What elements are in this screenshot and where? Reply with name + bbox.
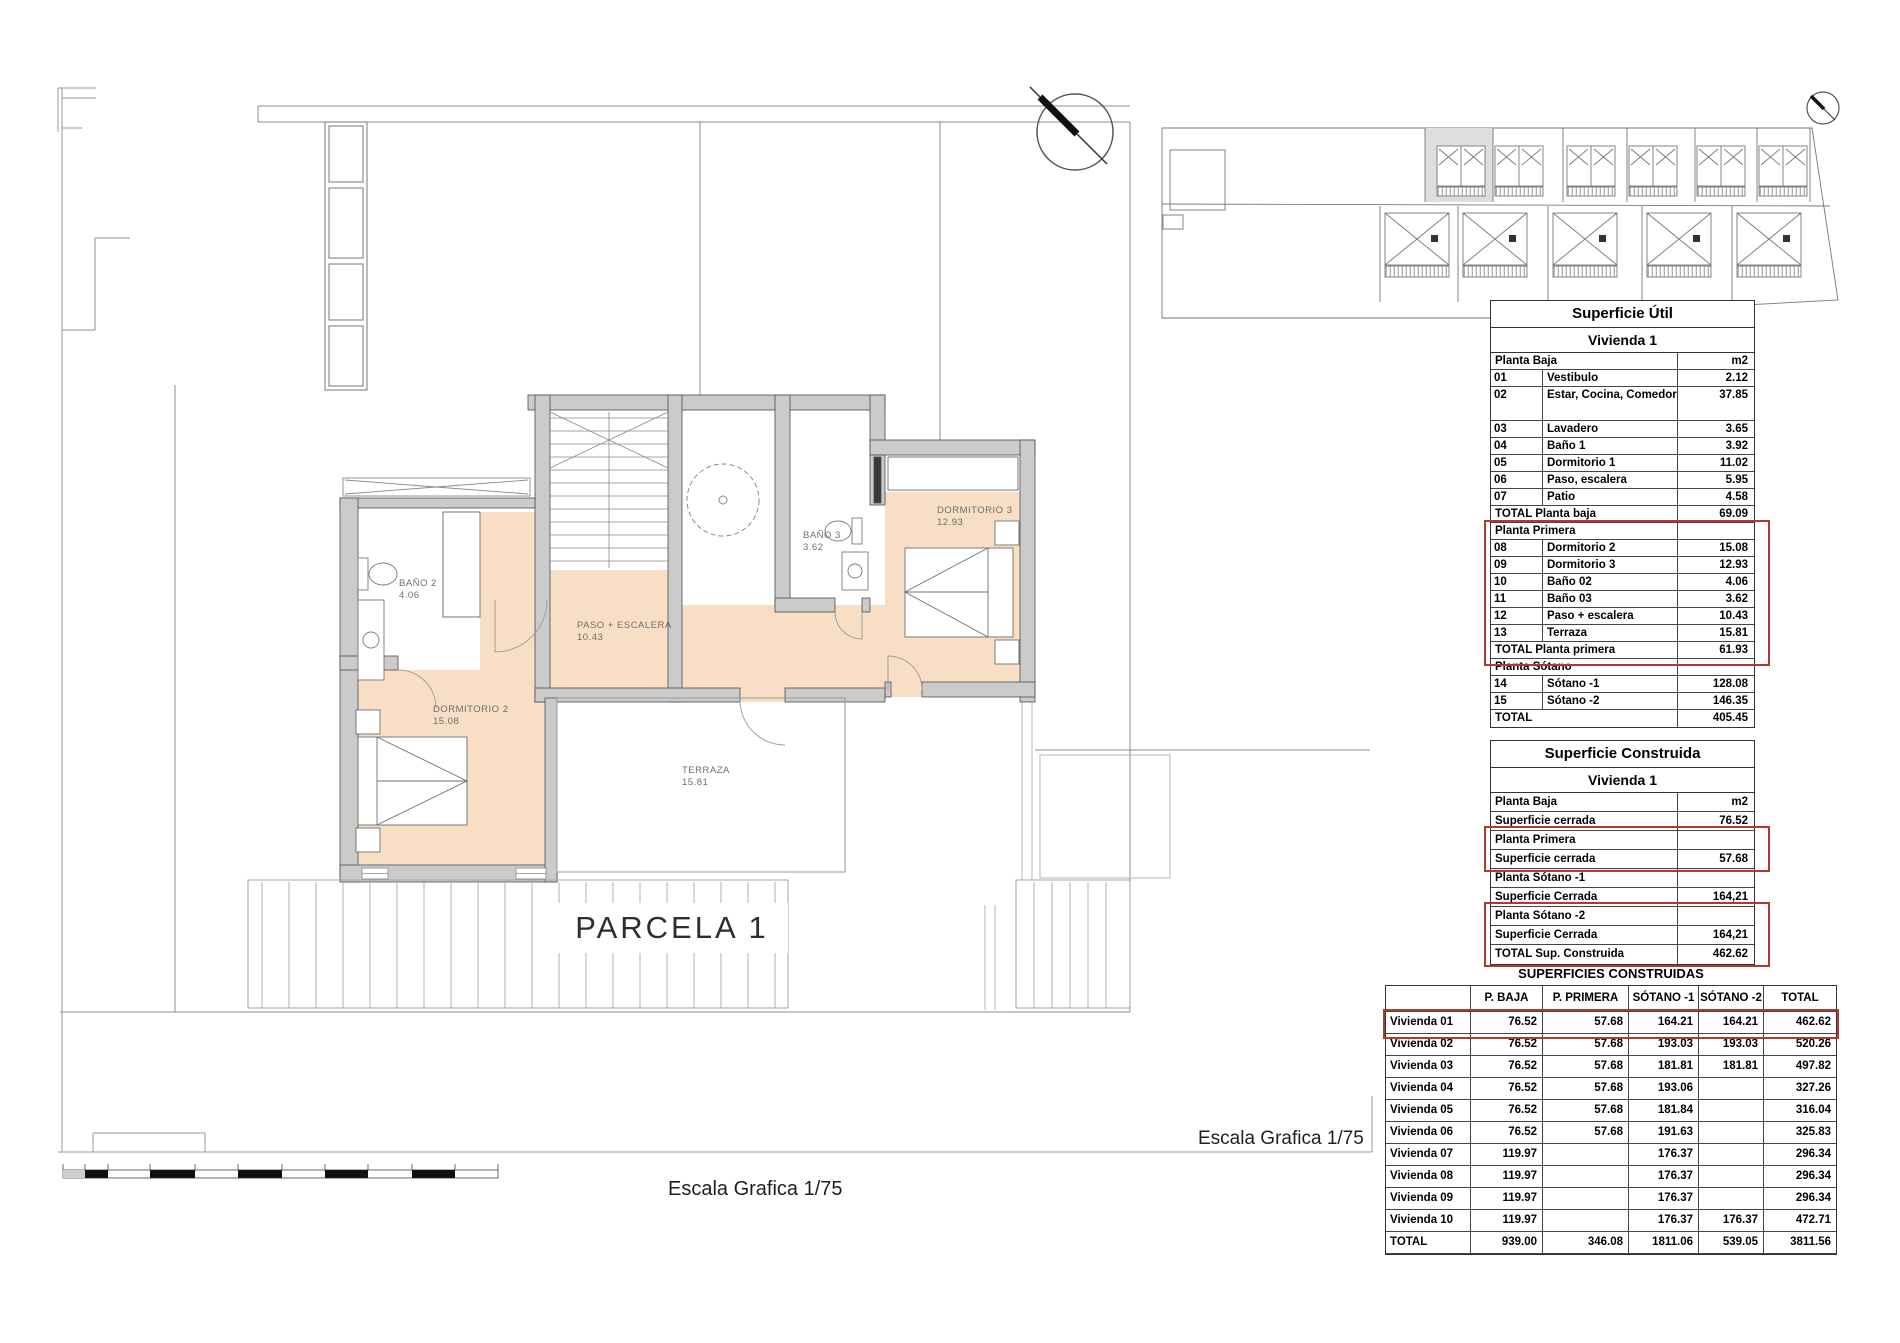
cell-pbaja: 119.97 — [1471, 1188, 1543, 1209]
room-area: 15.08 — [433, 716, 509, 728]
cell-pprimera — [1543, 1188, 1629, 1209]
cell-sotano2: 539.05 — [1699, 1232, 1764, 1253]
row-name: Planta Sótano -2 — [1491, 907, 1678, 925]
row-name: Lavadero — [1543, 421, 1678, 437]
table-row: Vivienda 08 119.97 176.37 296.34 — [1386, 1166, 1836, 1188]
cell-pprimera — [1543, 1166, 1629, 1187]
table-row: 15 Sótano -2 146.35 — [1491, 693, 1754, 710]
row-name: Patio — [1543, 489, 1678, 505]
cell-sotano1: 176.37 — [1629, 1188, 1699, 1209]
table-row: 12 Paso + escalera 10.43 — [1491, 608, 1754, 625]
cell-sotano1: 191.63 — [1629, 1122, 1699, 1143]
table-row: Planta Baja m2 — [1491, 793, 1754, 812]
table-row: TOTAL 405.45 — [1491, 710, 1754, 727]
row-value: 69.09 — [1678, 506, 1752, 522]
row-code: 12 — [1491, 608, 1543, 624]
cell-total: 325.83 — [1764, 1122, 1836, 1143]
site-plan-thumbnail — [1162, 92, 1839, 318]
row-label: Vivienda 08 — [1386, 1166, 1471, 1187]
window-band — [343, 478, 530, 496]
room-area: 12.93 — [937, 517, 1013, 529]
row-label: Vivienda 03 — [1386, 1056, 1471, 1077]
cell-sotano1: 181.84 — [1629, 1100, 1699, 1121]
table-row: Planta Sótano -1 — [1491, 869, 1754, 888]
cell-pprimera — [1543, 1144, 1629, 1165]
row-label: Vivienda 01 — [1386, 1012, 1471, 1033]
row-value — [1678, 659, 1752, 675]
row-code: 07 — [1491, 489, 1543, 505]
cell-pbaja: 76.52 — [1471, 1122, 1543, 1143]
row-label: Vivienda 09 — [1386, 1188, 1471, 1209]
cell-sotano2: 193.03 — [1699, 1034, 1764, 1055]
row-value: 10.43 — [1678, 608, 1752, 624]
cell-sotano1: 193.06 — [1629, 1078, 1699, 1099]
room-name: TERRAZA — [682, 765, 730, 777]
room-label-terraza: TERRAZA 15.81 — [682, 765, 730, 789]
row-label: Vivienda 04 — [1386, 1078, 1471, 1099]
row-label: Vivienda 05 — [1386, 1100, 1471, 1121]
room-area: 3.62 — [803, 542, 841, 554]
graphic-scale-bar — [63, 1164, 498, 1178]
cell-sotano1: 176.37 — [1629, 1144, 1699, 1165]
row-value: 15.08 — [1678, 540, 1752, 556]
row-name: Vestibulo — [1543, 370, 1678, 386]
cell-pbaja: 76.52 — [1471, 1056, 1543, 1077]
architectural-plan-sheet: BAÑO 2 4.06 DORMITORIO 2 15.08 PASO + ES… — [0, 0, 1900, 1343]
row-name: Superficie cerrada — [1491, 812, 1678, 830]
table-header-row: P. BAJA P. PRIMERA SÓTANO -1 SÓTANO -2 T… — [1386, 986, 1836, 1012]
room-label-bano2: BAÑO 2 4.06 — [399, 578, 437, 602]
row-code: 15 — [1491, 693, 1543, 709]
row-label: Vivienda 06 — [1386, 1122, 1471, 1143]
table-row: 13 Terraza 15.81 — [1491, 625, 1754, 642]
table-row: Vivienda 02 76.52 57.68 193.03 193.03 52… — [1386, 1034, 1836, 1056]
table-row: Planta Sótano — [1491, 659, 1754, 676]
row-code: 10 — [1491, 574, 1543, 590]
room-name: BAÑO 3 — [803, 530, 841, 542]
cell-total: 296.34 — [1764, 1144, 1836, 1165]
row-value: 37.85 — [1678, 387, 1752, 420]
room-name: DORMITORIO 2 — [433, 704, 509, 716]
row-label: TOTAL — [1386, 1232, 1471, 1253]
scale-caption-right: Escala Grafica 1/75 — [1198, 1128, 1363, 1150]
cell-pprimera — [1543, 1210, 1629, 1231]
row-name: Planta Primera — [1491, 831, 1678, 849]
cell-total: 462.62 — [1764, 1012, 1836, 1033]
scale-caption-bottom: Escala Grafica 1/75 — [668, 1178, 843, 1201]
cell-pprimera: 346.08 — [1543, 1232, 1629, 1253]
cell-sotano2 — [1699, 1144, 1764, 1165]
row-value: 4.58 — [1678, 489, 1752, 505]
room-area: 10.43 — [577, 632, 672, 644]
row-label: Vivienda 07 — [1386, 1144, 1471, 1165]
row-code: 14 — [1491, 676, 1543, 692]
table-row: 14 Sótano -1 128.08 — [1491, 676, 1754, 693]
row-code: 09 — [1491, 557, 1543, 573]
table-row: Planta Baja m2 — [1491, 353, 1754, 370]
row-value: 164,21 — [1678, 926, 1752, 944]
row-code: 08 — [1491, 540, 1543, 556]
table-row: Vivienda 05 76.52 57.68 181.84 316.04 — [1386, 1100, 1836, 1122]
row-code: 02 — [1491, 387, 1543, 420]
table-row: Vivienda 09 119.97 176.37 296.34 — [1386, 1188, 1836, 1210]
site-north-arrow-icon — [1807, 92, 1839, 124]
row-value — [1678, 831, 1752, 849]
row-code: 11 — [1491, 591, 1543, 607]
table-body: Planta Baja m2 Superficie cerrada 76.52 … — [1491, 793, 1754, 964]
row-name: Dormitorio 1 — [1543, 455, 1678, 471]
row-value: 11.02 — [1678, 455, 1752, 471]
table-row: 05 Dormitorio 1 11.02 — [1491, 455, 1754, 472]
row-name: Dormitorio 3 — [1543, 557, 1678, 573]
cell-pprimera: 57.68 — [1543, 1034, 1629, 1055]
row-name: Planta Baja — [1491, 793, 1678, 811]
row-name: Baño 02 — [1543, 574, 1678, 590]
table-row: 11 Baño 03 3.62 — [1491, 591, 1754, 608]
row-value — [1678, 907, 1752, 925]
row-name: TOTAL Sup. Construida — [1491, 945, 1678, 964]
bath3-fixtures — [825, 518, 868, 590]
room-name: DORMITORIO 3 — [937, 505, 1013, 517]
table-row: 03 Lavadero 3.65 — [1491, 421, 1754, 438]
row-name: Planta Baja — [1491, 353, 1678, 369]
table-row: Vivienda 10 119.97 176.37 176.37 472.71 — [1386, 1210, 1836, 1232]
table-subtitle: Vivienda 1 — [1491, 328, 1754, 353]
table-row: Planta Primera — [1491, 523, 1754, 540]
row-name: TOTAL Planta baja — [1491, 506, 1678, 522]
table-title: Superficie Útil — [1491, 301, 1754, 328]
cell-pbaja: 119.97 — [1471, 1166, 1543, 1187]
row-value: 146.35 — [1678, 693, 1752, 709]
col-header — [1386, 986, 1471, 1011]
row-name: TOTAL Planta primera — [1491, 642, 1678, 658]
col-header: P. PRIMERA — [1543, 986, 1629, 1011]
row-value — [1678, 869, 1752, 887]
row-value: 3.65 — [1678, 421, 1752, 437]
row-name: Sótano -2 — [1543, 693, 1678, 709]
table-row: 02 Estar, Cocina, Comedor 37.85 — [1491, 387, 1754, 421]
cell-pbaja: 76.52 — [1471, 1034, 1543, 1055]
cell-pprimera: 57.68 — [1543, 1012, 1629, 1033]
cell-pbaja: 119.97 — [1471, 1144, 1543, 1165]
room-label-dormitorio2: DORMITORIO 2 15.08 — [433, 704, 509, 728]
room-label-bano3: BAÑO 3 3.62 — [803, 530, 841, 554]
row-code: 05 — [1491, 455, 1543, 471]
col-header: SÓTANO -1 — [1629, 986, 1699, 1011]
cell-sotano1: 176.37 — [1629, 1166, 1699, 1187]
table-row: TOTAL Sup. Construida 462.62 — [1491, 945, 1754, 964]
row-code: 13 — [1491, 625, 1543, 641]
row-value: 15.81 — [1678, 625, 1752, 641]
row-name: TOTAL — [1491, 710, 1678, 727]
row-value: 3.92 — [1678, 438, 1752, 454]
table-row: 01 Vestibulo 2.12 — [1491, 370, 1754, 387]
table-row: Vivienda 04 76.52 57.68 193.06 327.26 — [1386, 1078, 1836, 1100]
row-value: 57.68 — [1678, 850, 1752, 868]
table-row: 09 Dormitorio 3 12.93 — [1491, 557, 1754, 574]
col-header: P. BAJA — [1471, 986, 1543, 1011]
table-row: 07 Patio 4.58 — [1491, 489, 1754, 506]
cell-sotano2 — [1699, 1078, 1764, 1099]
patio-tree — [687, 464, 759, 536]
table-row: Vivienda 07 119.97 176.37 296.34 — [1386, 1144, 1836, 1166]
room-area: 4.06 — [399, 590, 437, 602]
cell-total: 472.71 — [1764, 1210, 1836, 1231]
row-value: m2 — [1678, 353, 1752, 369]
row-label: Vivienda 02 — [1386, 1034, 1471, 1055]
cell-sotano1: 164.21 — [1629, 1012, 1699, 1033]
cell-sotano1: 181.81 — [1629, 1056, 1699, 1077]
cell-sotano1: 193.03 — [1629, 1034, 1699, 1055]
row-value — [1678, 523, 1752, 539]
room-name: PASO + ESCALERA — [577, 620, 672, 632]
row-code: 03 — [1491, 421, 1543, 437]
row-value: 12.93 — [1678, 557, 1752, 573]
row-name: Planta Sótano -1 — [1491, 869, 1678, 887]
cell-pbaja: 119.97 — [1471, 1210, 1543, 1231]
table-row: Planta Sótano -2 — [1491, 907, 1754, 926]
row-value: 462.62 — [1678, 945, 1752, 964]
cell-pprimera: 57.68 — [1543, 1100, 1629, 1121]
row-value: 164,21 — [1678, 888, 1752, 906]
table-row: Vivienda 01 76.52 57.68 164.21 164.21 46… — [1386, 1012, 1836, 1034]
row-name: Terraza — [1543, 625, 1678, 641]
row-value: m2 — [1678, 793, 1752, 811]
superficie-construida-table: Superficie Construida Vivienda 1 Planta … — [1490, 740, 1755, 965]
table-row: Vivienda 03 76.52 57.68 181.81 181.81 49… — [1386, 1056, 1836, 1078]
room-label-dormitorio3: DORMITORIO 3 12.93 — [937, 505, 1013, 529]
table-row: Superficie Cerrada 164,21 — [1491, 926, 1754, 945]
room-area: 15.81 — [682, 777, 730, 789]
cell-sotano2: 164.21 — [1699, 1012, 1764, 1033]
row-value: 4.06 — [1678, 574, 1752, 590]
cell-total: 316.04 — [1764, 1100, 1836, 1121]
table-row: Superficie cerrada 76.52 — [1491, 812, 1754, 831]
row-code: 04 — [1491, 438, 1543, 454]
row-name: Baño 03 — [1543, 591, 1678, 607]
table-row: TOTAL 939.00 346.08 1811.06 539.05 3811.… — [1386, 1232, 1836, 1254]
superficies-construidas-table: SUPERFICIES CONSTRUIDAS P. BAJA P. PRIME… — [1385, 963, 1837, 1255]
parcel-title: PARCELA 1 — [556, 905, 788, 951]
row-name: Dormitorio 2 — [1543, 540, 1678, 556]
superficie-util-table: Superficie Útil Vivienda 1 Planta Baja m… — [1490, 300, 1755, 728]
table-row: 04 Baño 1 3.92 — [1491, 438, 1754, 455]
row-value: 61.93 — [1678, 642, 1752, 658]
row-code: 06 — [1491, 472, 1543, 488]
cell-sotano2 — [1699, 1122, 1764, 1143]
lot-boundary-lines — [60, 106, 1370, 1012]
cell-pprimera: 57.68 — [1543, 1056, 1629, 1077]
table-row: 06 Paso, escalera 5.95 — [1491, 472, 1754, 489]
row-code: 01 — [1491, 370, 1543, 386]
row-name: Superficie cerrada — [1491, 850, 1678, 868]
cell-sotano2: 176.37 — [1699, 1210, 1764, 1231]
cell-sotano2 — [1699, 1188, 1764, 1209]
row-name: Planta Primera — [1491, 523, 1678, 539]
row-value: 76.52 — [1678, 812, 1752, 830]
table-row: 08 Dormitorio 2 15.08 — [1491, 540, 1754, 557]
cell-total: 520.26 — [1764, 1034, 1836, 1055]
cell-sotano2: 181.81 — [1699, 1056, 1764, 1077]
row-name: Planta Sótano — [1491, 659, 1678, 675]
staircase — [550, 412, 668, 568]
room-label-paso-escalera: PASO + ESCALERA 10.43 — [577, 620, 672, 644]
cell-pbaja: 76.52 — [1471, 1100, 1543, 1121]
row-value: 405.45 — [1678, 710, 1752, 727]
row-label: Vivienda 10 — [1386, 1210, 1471, 1231]
cell-total: 327.26 — [1764, 1078, 1836, 1099]
cell-total: 296.34 — [1764, 1166, 1836, 1187]
cell-total: 497.82 — [1764, 1056, 1836, 1077]
row-name: Paso + escalera — [1543, 608, 1678, 624]
table-title: SUPERFICIES CONSTRUIDAS — [1385, 963, 1837, 985]
cell-pprimera: 57.68 — [1543, 1078, 1629, 1099]
cell-pprimera: 57.68 — [1543, 1122, 1629, 1143]
row-value: 5.95 — [1678, 472, 1752, 488]
cell-pbaja: 76.52 — [1471, 1078, 1543, 1099]
row-value: 3.62 — [1678, 591, 1752, 607]
col-header: SÓTANO -2 — [1699, 986, 1764, 1011]
row-value: 128.08 — [1678, 676, 1752, 692]
table-row: TOTAL Planta primera 61.93 — [1491, 642, 1754, 659]
cell-pbaja: 76.52 — [1471, 1012, 1543, 1033]
cell-sotano2 — [1699, 1166, 1764, 1187]
row-value: 2.12 — [1678, 370, 1752, 386]
table-row: Superficie cerrada 57.68 — [1491, 850, 1754, 869]
row-name: Superficie Cerrada — [1491, 888, 1678, 906]
table-row: Superficie Cerrada 164,21 — [1491, 888, 1754, 907]
table-row: Vivienda 06 76.52 57.68 191.63 325.83 — [1386, 1122, 1836, 1144]
col-header: TOTAL — [1764, 986, 1836, 1011]
row-name: Baño 1 — [1543, 438, 1678, 454]
row-name: Estar, Cocina, Comedor — [1543, 387, 1678, 420]
cell-pbaja: 939.00 — [1471, 1232, 1543, 1253]
cell-sotano1: 1811.06 — [1629, 1232, 1699, 1253]
room-name: BAÑO 2 — [399, 578, 437, 590]
boundary-wall-panels — [325, 122, 367, 390]
table-row: 10 Baño 02 4.06 — [1491, 574, 1754, 591]
table-body: Planta Baja m2 01 Vestibulo 2.12 02 Esta… — [1491, 353, 1754, 727]
north-arrow-icon — [1030, 87, 1113, 170]
cell-total: 296.34 — [1764, 1188, 1836, 1209]
cell-sotano2 — [1699, 1100, 1764, 1121]
table-body: Vivienda 01 76.52 57.68 164.21 164.21 46… — [1386, 1012, 1836, 1254]
table-subtitle: Vivienda 1 — [1491, 768, 1754, 793]
cell-sotano1: 176.37 — [1629, 1210, 1699, 1231]
row-name: Superficie Cerrada — [1491, 926, 1678, 944]
table-row: Planta Primera — [1491, 831, 1754, 850]
row-name: Paso, escalera — [1543, 472, 1678, 488]
row-name: Sótano -1 — [1543, 676, 1678, 692]
cell-total: 3811.56 — [1764, 1232, 1836, 1253]
table-title: Superficie Construida — [1491, 741, 1754, 768]
table-row: TOTAL Planta baja 69.09 — [1491, 506, 1754, 523]
